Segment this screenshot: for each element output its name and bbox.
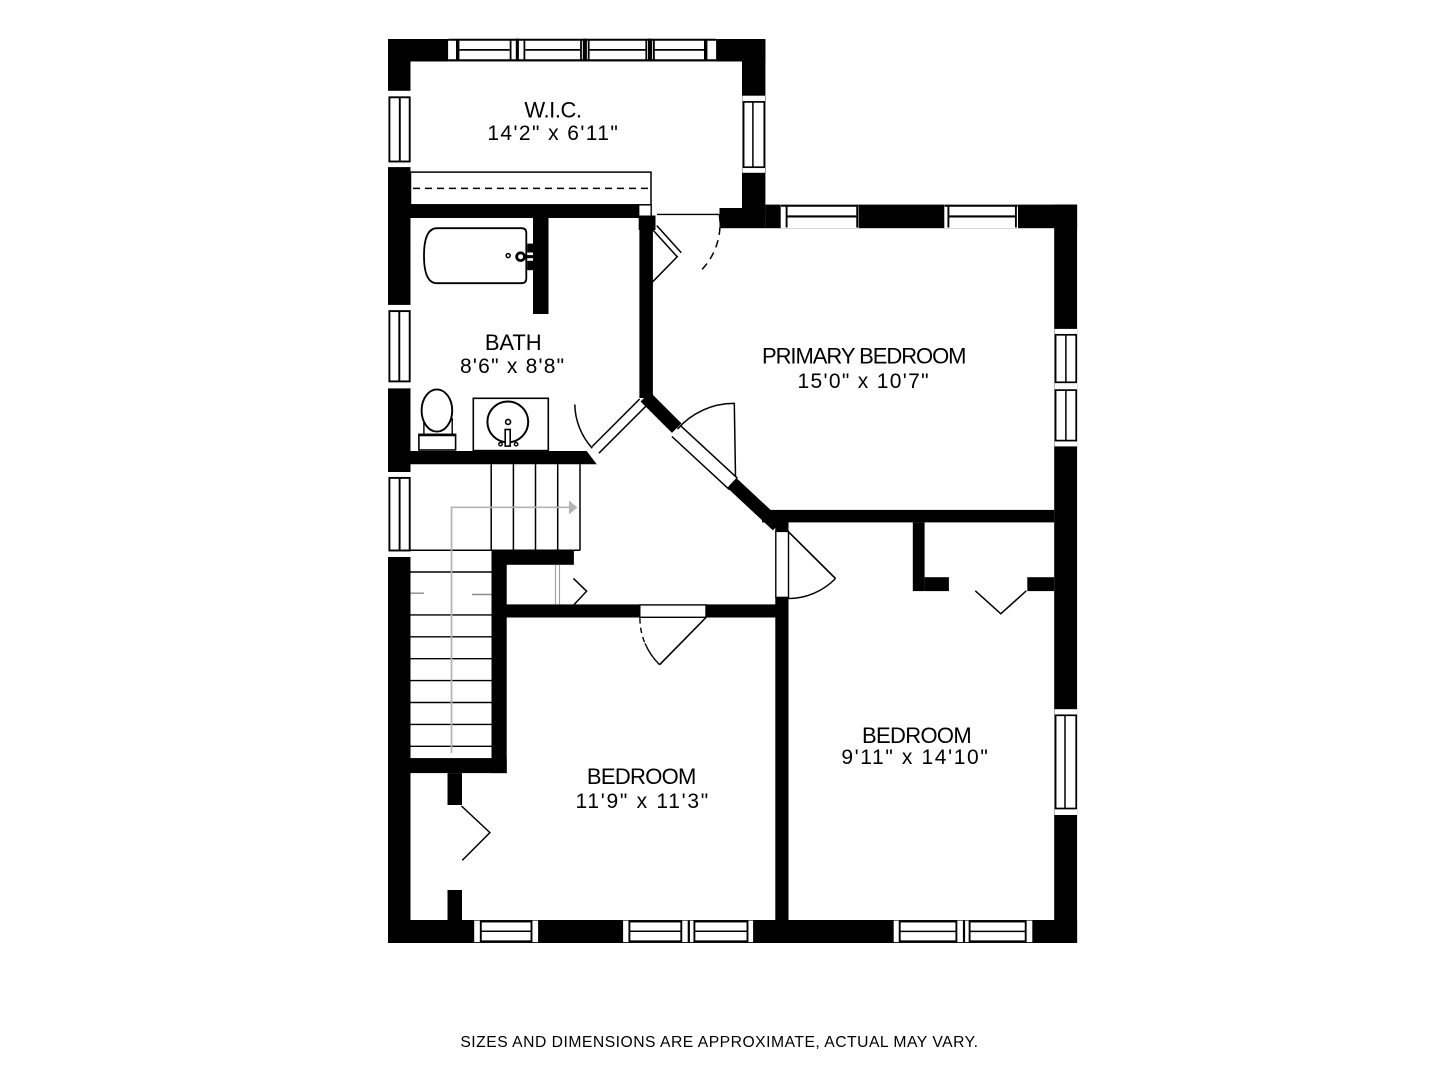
svg-text:11'9" x 11'3": 11'9" x 11'3" — [575, 790, 709, 813]
svg-text:BATH: BATH — [485, 330, 542, 355]
svg-text:W.I.C.: W.I.C. — [524, 98, 581, 123]
svg-text:14'2" x 6'11": 14'2" x 6'11" — [487, 122, 619, 145]
svg-text:9'11" x 14'10": 9'11" x 14'10" — [841, 746, 989, 769]
svg-text:PRIMARY BEDROOM: PRIMARY BEDROOM — [762, 343, 965, 368]
svg-text:BEDROOM: BEDROOM — [587, 764, 696, 789]
svg-text:SIZES AND DIMENSIONS ARE APPRO: SIZES AND DIMENSIONS ARE APPROXIMATE, AC… — [460, 1034, 978, 1051]
svg-text:BEDROOM: BEDROOM — [862, 723, 971, 748]
svg-text:8'6" x 8'8": 8'6" x 8'8" — [460, 355, 565, 378]
svg-text:15'0" x 10'7": 15'0" x 10'7" — [798, 370, 930, 393]
